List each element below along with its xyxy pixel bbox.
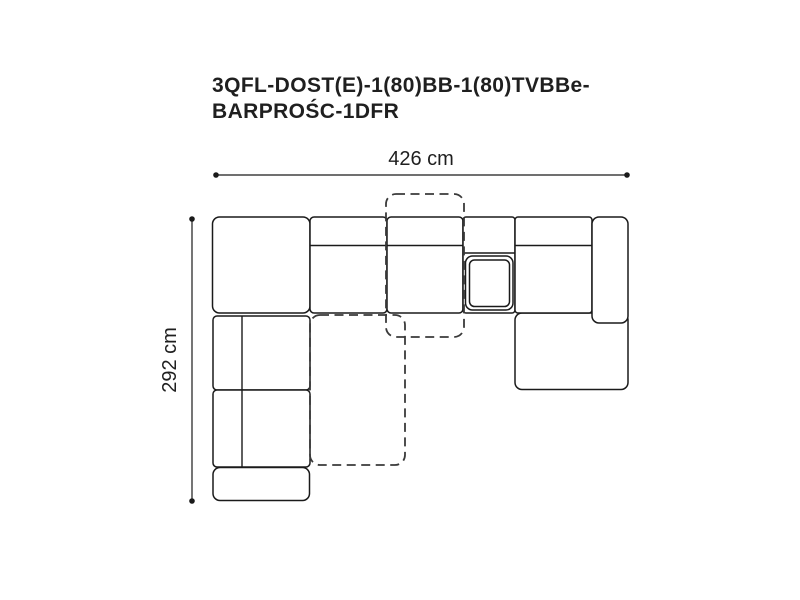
height-dimension: 292 cm [159,216,195,504]
width-dimension-label: 426 cm [388,148,454,170]
right-armrest [592,217,628,323]
sofa-top-view-diagram: 426 cm 292 cm [0,0,800,600]
bottom-armrest [213,468,310,501]
height-dimension-label: 292 cm [159,327,181,393]
sofa-technical-diagram-page: 3QFL-DOST(E)-1(80)BB-1(80)TVBBe- BARPROŚ… [0,0,800,600]
extension-outline-bottom [310,315,405,465]
corner-module [213,217,311,313]
width-dimension-end-right [624,172,630,178]
height-dimension-end-top [189,216,195,222]
top-seat-module-1 [310,217,387,313]
top-seat-module-2 [387,217,463,313]
height-dimension-end-bottom [189,498,195,504]
chaise-module [515,313,628,390]
width-dimension: 426 cm [213,148,630,178]
right-seat-module [515,217,592,313]
left-seat-module-1 [213,316,310,390]
sofa-outline [213,217,629,501]
left-seat-module-2 [213,390,310,467]
bar-shelf-inner [470,260,510,307]
width-dimension-end-left [213,172,219,178]
